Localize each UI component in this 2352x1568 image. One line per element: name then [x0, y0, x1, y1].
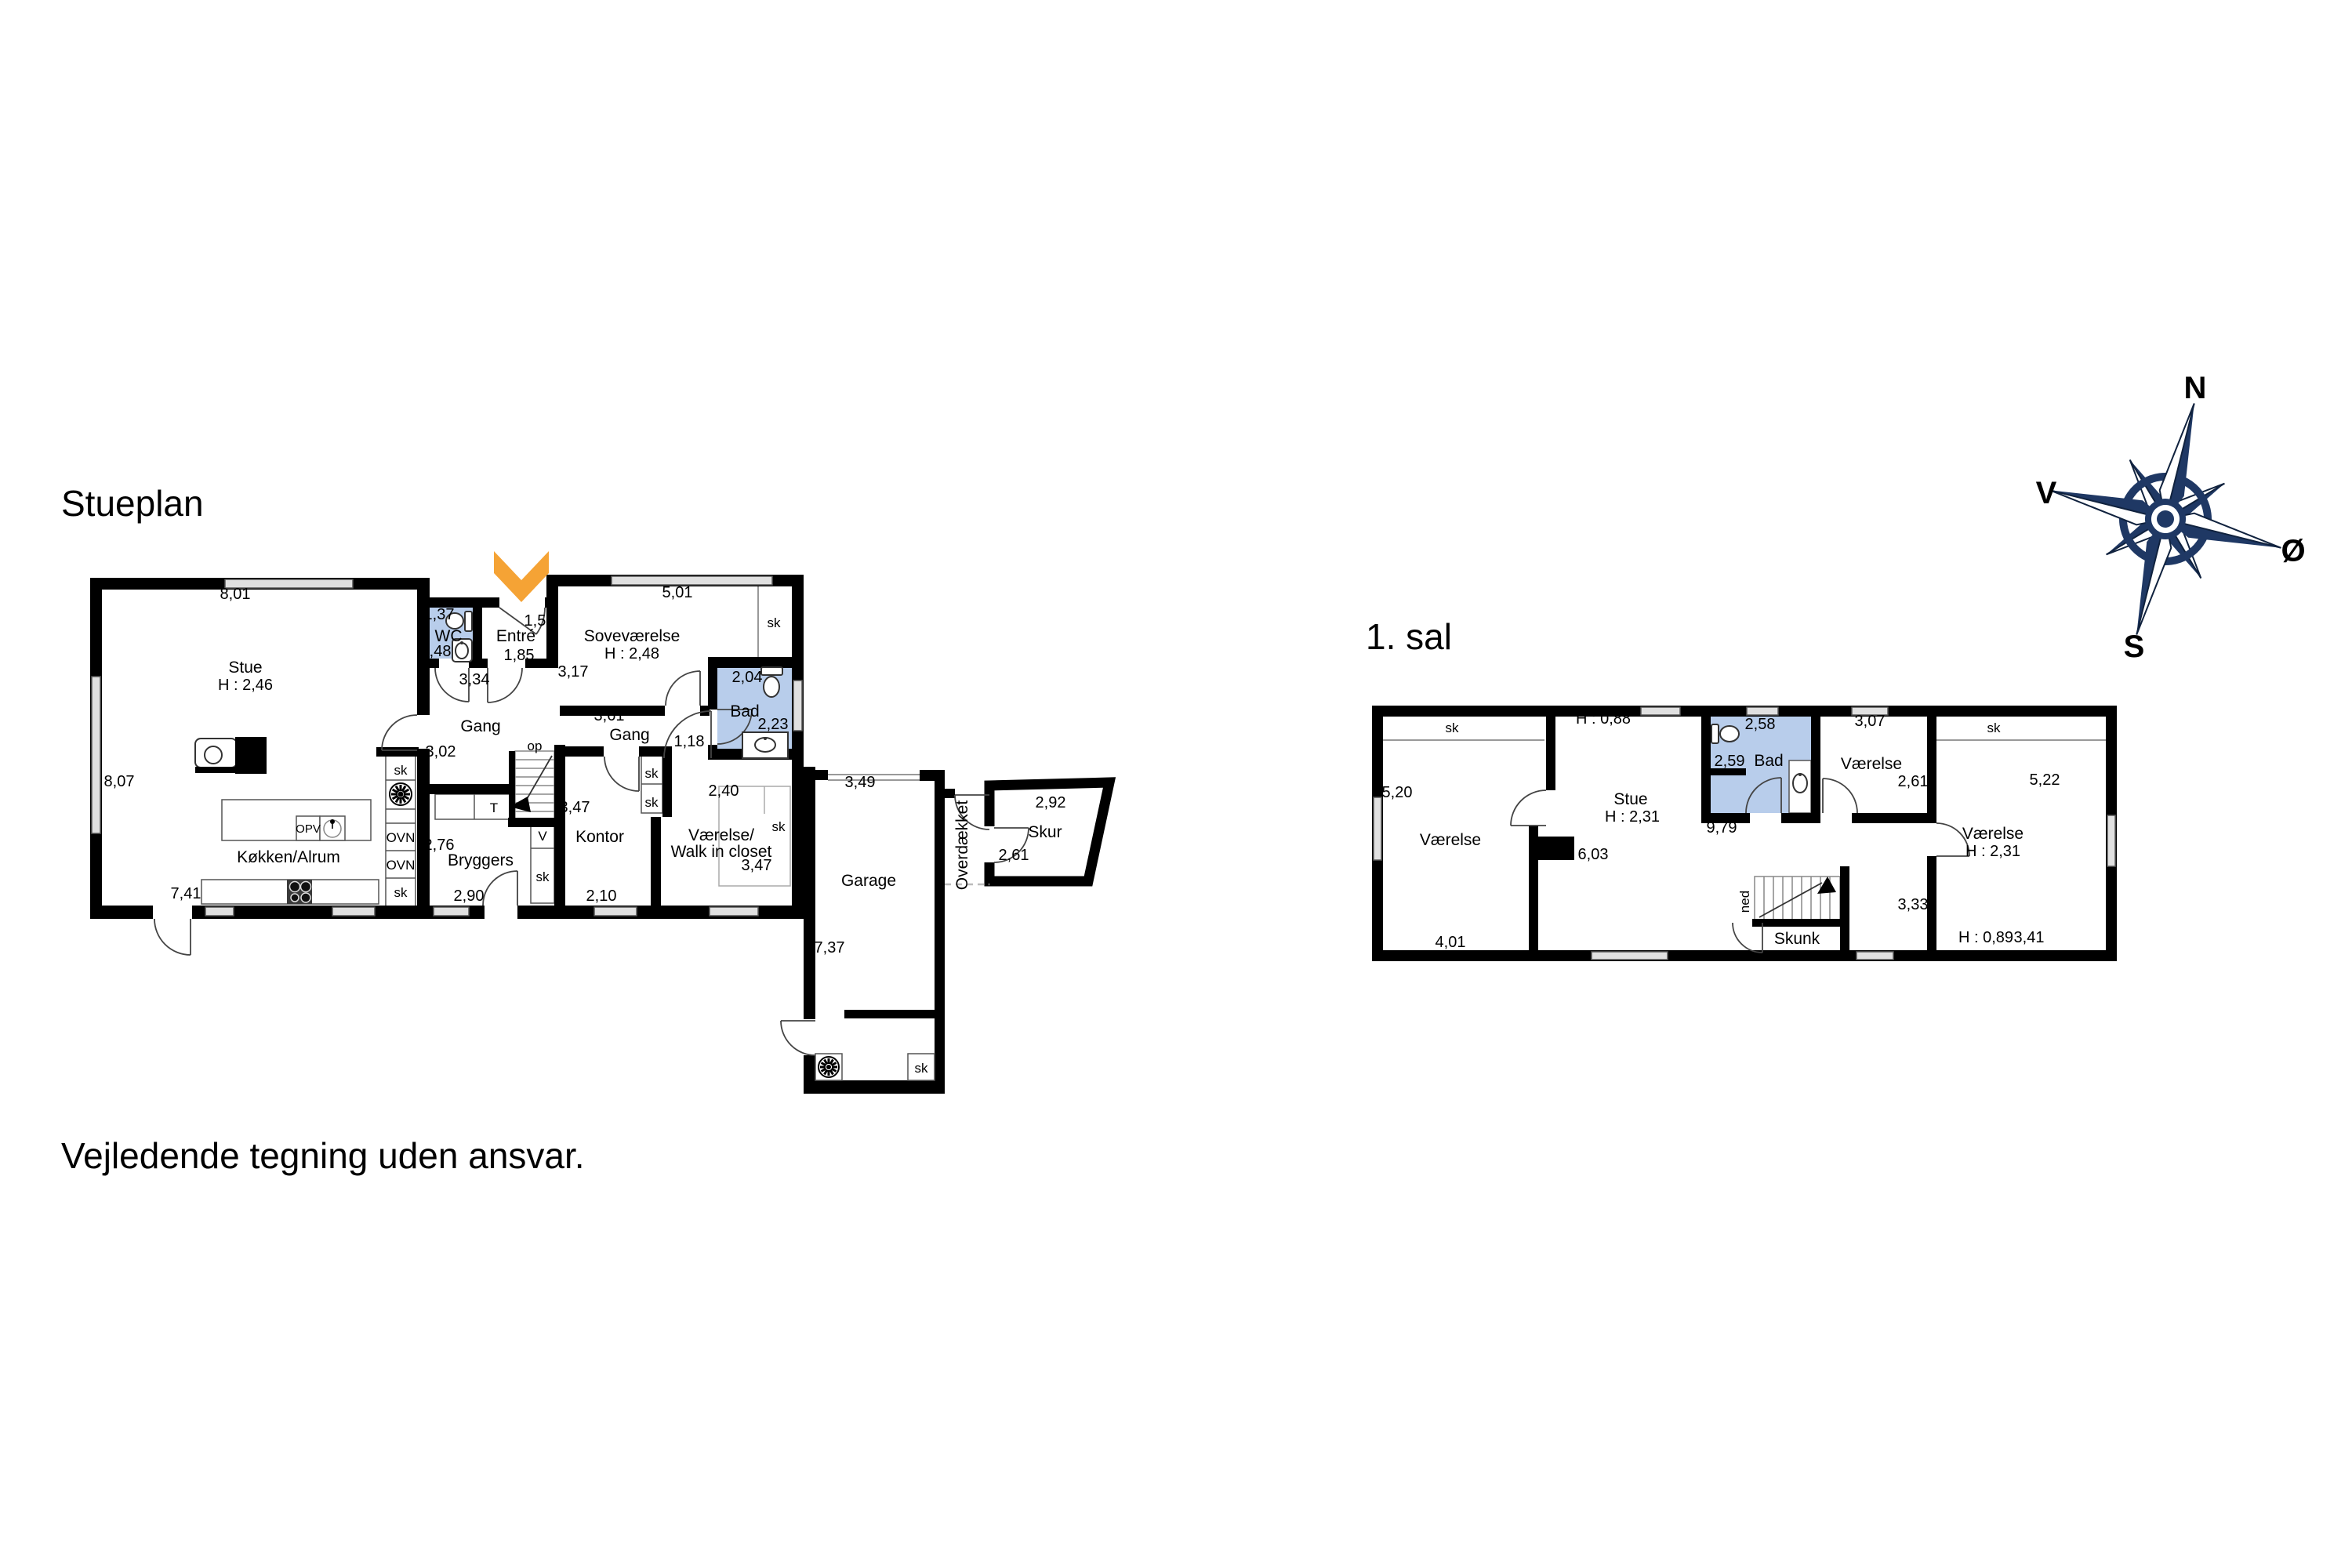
room-label-stue: Stue: [228, 659, 262, 677]
room-label-walkin-1: Værelse/: [688, 826, 754, 844]
dim-stue-left: 8,07: [104, 773, 135, 790]
label-sk-column-top: sk: [394, 763, 408, 778]
dim-vaerelse-vest-left: 5,20: [1382, 784, 1413, 801]
dim-garage-top: 3,49: [845, 774, 876, 791]
room-label-garage: Garage: [841, 872, 896, 890]
label-sk-kontor-1: sk: [645, 766, 659, 781]
dim-skur-left: 2,61: [999, 847, 1029, 864]
room-label-bryggers: Bryggers: [448, 851, 514, 869]
dim-stue-top: 8,01: [220, 586, 251, 603]
dim-sovevaerelse-top: 5,01: [662, 584, 693, 601]
dim-first-bad-inner: 2,59: [1715, 753, 1745, 770]
dim-vaerelse-midt-top: 3,07: [1855, 713, 1886, 730]
ground-floor-plan: 8,01 Stue H : 2,46 8,07 Køkken/Alrum 7,4…: [90, 551, 1109, 1094]
chimney-icon: [1538, 837, 1574, 860]
room-label-vaerelse-oest: Værelse: [1962, 825, 2024, 843]
room-label-gang-midt: Gang: [609, 726, 649, 744]
dim-wc-depth: 1,48: [421, 643, 452, 660]
dim-wc-width: 1,37: [424, 606, 455, 623]
compass-east-label: Ø: [2281, 534, 2305, 568]
ground-floor-title: Stueplan: [61, 483, 204, 524]
label-t: T: [490, 800, 498, 815]
label-sk-trappe: sk: [536, 869, 550, 884]
knee-height-vaerelse-oest: H : 0,89: [1958, 929, 2013, 946]
dim-first-total: 9,79: [1707, 819, 1737, 837]
dim-gang-vest-width: 3,34: [459, 671, 490, 688]
garage-door-gap: [802, 1019, 817, 1055]
dim-skur-top: 2,92: [1036, 794, 1066, 811]
fan-icon: [390, 783, 412, 805]
label-opv: OPV: [296, 822, 321, 836]
label-sk-garage: sk: [915, 1061, 929, 1076]
room-label-skur: Skur: [1028, 823, 1062, 841]
kitchen-counter: [201, 880, 379, 904]
compass-rose-icon: N V Ø S: [2021, 371, 2310, 664]
room-label-kontor: Kontor: [575, 828, 624, 846]
dim-sovevaerelse-left: 3,17: [558, 663, 589, 681]
label-sk-sovevaerelse: sk: [768, 615, 782, 630]
compass-south-label: S: [2124, 630, 2145, 664]
compass-north-label: N: [2184, 371, 2207, 405]
dim-gang-depth: 3,33: [1898, 896, 1929, 913]
ceiling-first-stue: H : 2,31: [1605, 808, 1660, 826]
room-label-gang-vest: Gang: [460, 717, 500, 735]
ceiling-sovevaerelse: H : 2,48: [604, 645, 659, 662]
dim-kontor-bottom: 2,10: [586, 887, 617, 905]
label-sk-walkin: sk: [772, 819, 786, 834]
room-label-koekken: Køkken/Alrum: [237, 848, 340, 866]
stairs-up-icon: [510, 751, 554, 819]
dim-vaerelse-oest-left: 5,22: [2030, 771, 2060, 789]
room-label-first-stue: Stue: [1613, 790, 1647, 808]
first-bad-sink-icon: [1793, 773, 1807, 793]
label-sk-column-bottom: sk: [394, 885, 408, 900]
room-label-first-bad: Bad: [1754, 752, 1783, 770]
dim-bad-depth: 2,23: [758, 716, 789, 733]
compass-west-label: V: [2036, 476, 2057, 510]
stairs-down-icon: [1755, 877, 1840, 920]
label-ovn-2: OVN: [387, 858, 416, 873]
dim-kontor-left: 3,47: [560, 799, 590, 816]
dim-gang-midt-depth: 1,18: [674, 733, 705, 750]
room-label-bad: Bad: [730, 702, 759, 720]
dim-entre-depth: 1,85: [504, 647, 535, 664]
dim-gang-vest-depth: 3,02: [426, 743, 456, 760]
dim-bad-width: 2,04: [732, 669, 763, 686]
knee-height-stue: H : 0,88: [1576, 710, 1631, 728]
label-v: V: [538, 829, 547, 844]
room-label-vaerelse-midt: Værelse: [1841, 755, 1902, 773]
dim-gang-midt-width: 3,61: [594, 707, 625, 724]
dim-garage-left: 7,37: [815, 939, 845, 956]
disclaimer-text: Vejledende tegning uden ansvar.: [61, 1135, 585, 1176]
room-label-skunk: Skunk: [1774, 930, 1820, 948]
dim-stue-chimney: 6,03: [1578, 846, 1609, 863]
room-label-entre: Entré: [496, 627, 535, 645]
first-floor-title: 1. sal: [1366, 616, 1452, 657]
fireplace-icon: [195, 737, 267, 774]
label-ovn-1: OVN: [387, 830, 416, 845]
floor-plan-page: Stueplan 1. sal Vejledende tegning uden …: [0, 0, 2352, 1568]
dim-walkin-top: 2,40: [709, 782, 739, 800]
dim-vaerelse-vest-bottom: 4,01: [1436, 934, 1466, 951]
garage-fan-icon: [818, 1057, 839, 1077]
label-op: op: [528, 739, 543, 753]
dim-koekken-bottom: 7,41: [171, 885, 201, 902]
closet-cells-t: [435, 794, 514, 819]
bad-sink-icon: [742, 732, 788, 758]
label-sk-band-left: sk: [1446, 720, 1460, 735]
first-floor-plan: sk 5,20 Værelse 4,01 H : 0,88 Stue H : 2…: [1372, 706, 2117, 961]
dim-vaerelse-midt-right: 2,61: [1898, 773, 1929, 790]
ceiling-vaerelse-oest: H : 2,31: [1965, 843, 2020, 860]
label-sk-kontor-2: sk: [645, 795, 659, 810]
room-label-vaerelse-vest: Værelse: [1420, 831, 1481, 849]
entrance-arrow-icon: [494, 551, 549, 602]
label-sk-band-right: sk: [1987, 720, 2002, 735]
label-ned: ned: [1737, 891, 1752, 913]
room-label-sovevaerelse: Soveværelse: [584, 627, 681, 645]
room-label-overdaekket: Overdækket: [953, 800, 971, 891]
dim-vaerelse-oest-bottom: 3,41: [2014, 929, 2045, 946]
first-bad-toilet-icon: [1711, 724, 1739, 743]
dim-first-bad-top: 2,58: [1745, 716, 1776, 733]
ceiling-stue: H : 2,46: [218, 677, 273, 694]
dim-bryggers-bottom: 2,90: [454, 887, 485, 905]
dim-walkin-right: 3,47: [742, 857, 772, 874]
